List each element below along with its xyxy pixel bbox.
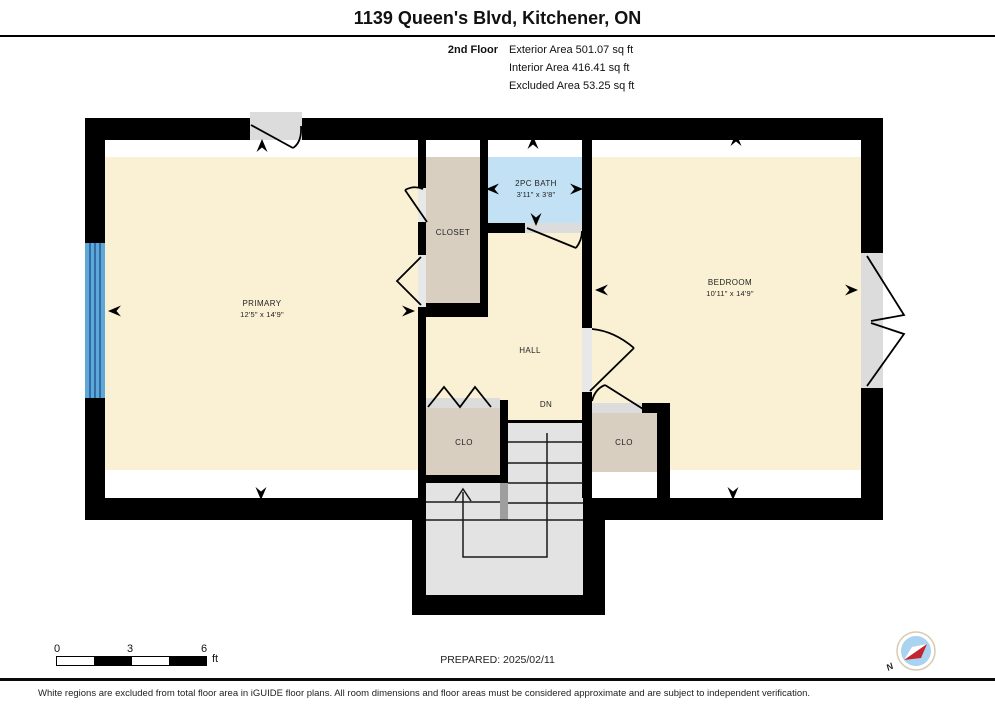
bedroom-dims: 10'11" x 14'9" <box>706 289 754 298</box>
wall-clo-left-bottom <box>418 475 508 483</box>
primary-dims: 12'5" x 14'9" <box>240 310 284 319</box>
bath-label: 2PC BATH <box>515 179 557 188</box>
clo-right-label: CLO <box>615 438 633 447</box>
bedroom-label: BEDROOM <box>708 278 752 287</box>
stairs-top-edge <box>508 420 583 423</box>
stairwell-wall-bottom <box>412 595 605 615</box>
stairs-down-flight <box>508 423 583 520</box>
dormer-door-notch <box>250 112 302 140</box>
compass: N <box>884 632 935 673</box>
wall-bottom-left <box>85 498 412 520</box>
wall-top <box>85 118 883 140</box>
hall-label: HALL <box>519 346 541 355</box>
primary-label: PRIMARY <box>242 299 281 308</box>
prepared-date: PREPARED: 2025/02/11 <box>0 654 995 666</box>
closet-door-gap <box>418 188 426 222</box>
stairs-divider <box>500 483 508 520</box>
wall-bottom-right <box>583 498 883 520</box>
bath-dims: 3'11" x 3'8" <box>517 190 556 199</box>
floor-plan-page: 1139 Queen's Blvd, Kitchener, ON 2nd Flo… <box>0 0 995 720</box>
wall-bath-bottom <box>488 223 525 233</box>
closet-label: CLOSET <box>436 228 470 237</box>
footer-divider <box>0 678 995 681</box>
wall-closet-bottom <box>418 303 488 317</box>
floor-plan: PRIMARY 12'5" x 14'9" CLOSET 2PC BATH 3'… <box>0 0 995 720</box>
wall-clo-right-stub <box>642 403 657 413</box>
clo-left-label: CLO <box>455 438 473 447</box>
wall-hall-bedroom <box>582 140 592 498</box>
bedroom-door-gap <box>582 328 592 392</box>
wall-clo-right-side <box>657 403 670 498</box>
stairs-down-label: DN <box>540 400 552 409</box>
wall-closet-right <box>480 140 488 303</box>
wall-clo-left-side <box>500 400 508 483</box>
disclaimer-text: White regions are excluded from total fl… <box>38 688 968 699</box>
primary-bifold-gap <box>418 255 426 307</box>
